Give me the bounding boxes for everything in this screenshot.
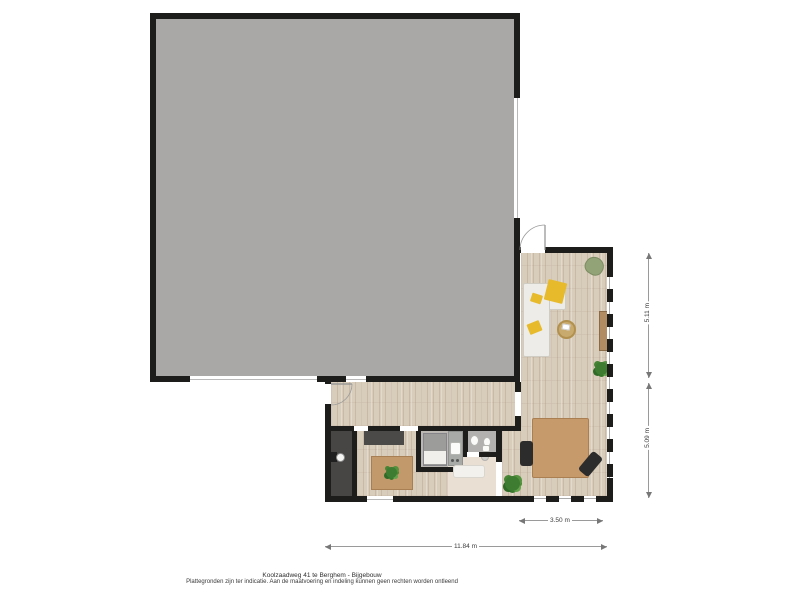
bath-door-gap (467, 452, 479, 457)
wall-bednook-south (416, 467, 453, 472)
dim-arrow (325, 544, 331, 550)
wall-dining-bednook (416, 431, 421, 472)
wall-right-bottom-corner (607, 478, 613, 502)
boiler-icon (336, 453, 345, 462)
window-wall-bottom-right (521, 496, 607, 502)
dim-arrow (646, 372, 652, 378)
dim-label-bottom-total: 11.84 m (452, 543, 479, 550)
bathroom-sink-1 (470, 435, 479, 446)
wall-bottom-left (325, 496, 521, 502)
toilet (482, 445, 490, 452)
wardrobe (364, 431, 404, 445)
room-corridor-floor (331, 382, 515, 426)
dim-arrow (646, 492, 652, 498)
entrance-door-swing (329, 382, 356, 409)
coffee-table-tray (562, 323, 571, 330)
caption: Koolzaadweg 41 te Berghem - Bijgebouw Pl… (72, 572, 572, 586)
dim-label-bottom-width: 3.50 m (548, 517, 572, 524)
wall-tech-east (352, 431, 357, 496)
dining-door-gap-1 (354, 426, 368, 431)
kitchen-sink (450, 442, 461, 455)
barn-opening-bottom (190, 376, 317, 382)
wall-hall-living (496, 426, 502, 462)
dim-arrow (601, 544, 607, 550)
room-tech-floor (331, 431, 352, 496)
wall-right-top-corner (607, 250, 613, 264)
hall-bench (453, 465, 485, 478)
plant-dining-table (386, 467, 397, 478)
window-bottom-small (367, 496, 393, 502)
dim-arrow (646, 253, 652, 259)
caption-disclaimer: Plattegronden zijn ter indicatie. Aan de… (72, 579, 572, 586)
living-entry-door-swing (515, 220, 555, 255)
office-chair-left (520, 441, 533, 466)
barn-window-right (514, 98, 520, 218)
floorplan-canvas: 5.11 m 5.09 m 3.50 m 11.84 m Koolzaadweg… (0, 0, 800, 600)
window-wall-right (607, 264, 613, 478)
dining-door-gap-2 (400, 426, 418, 431)
bed-mattress (424, 451, 446, 464)
corridor-living-opening (515, 392, 521, 416)
room-barn (150, 13, 520, 382)
dim-label-right-upper: 5.11 m (644, 301, 651, 324)
stove-burner (456, 459, 459, 462)
dim-label-right-lower: 5.09 m (644, 426, 651, 450)
caption-title: Koolzaadweg 41 te Berghem - Bijgebouw (72, 572, 572, 579)
stove-burner (451, 459, 454, 462)
plant-office (505, 476, 520, 491)
dim-arrow (646, 383, 652, 389)
dim-arrow (519, 518, 525, 524)
dim-arrow (597, 518, 603, 524)
